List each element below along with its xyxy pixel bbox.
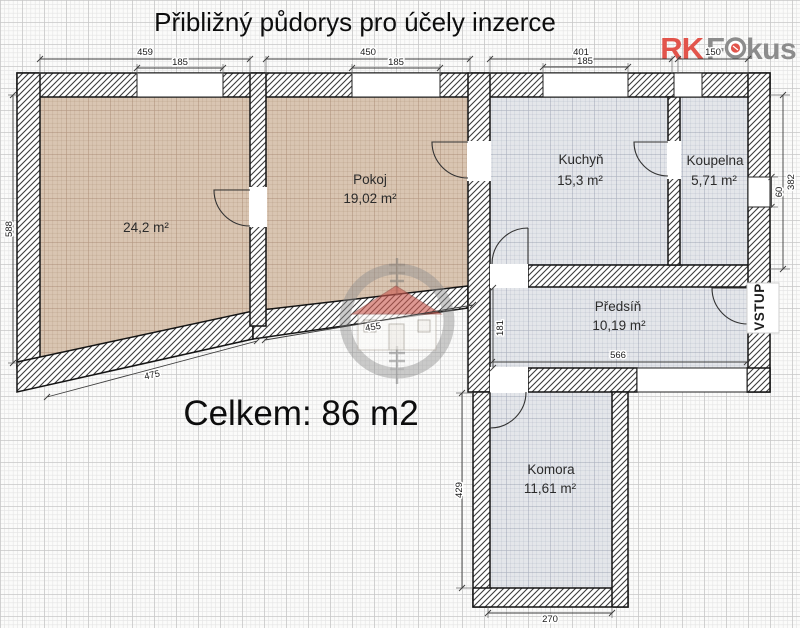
watermark-house-window-right bbox=[418, 320, 430, 332]
watermark bbox=[345, 258, 449, 384]
door-gap-kuchyn-predsin bbox=[490, 264, 528, 288]
page-title: Přibližný půdorys pro účely inzerce bbox=[154, 7, 556, 37]
dim-label-459: 459 bbox=[137, 47, 153, 58]
wall-kuchyn-koupelna-lower bbox=[668, 178, 680, 265]
dim-label-450: 450 bbox=[360, 47, 376, 58]
entrance: VSTUP bbox=[747, 283, 779, 333]
room-name-koupelna: Koupelna bbox=[686, 153, 744, 168]
wall-kuchyn-koupelna-upper bbox=[668, 97, 680, 142]
dim-label-60: 60 bbox=[774, 187, 785, 198]
dim-label-185-living: 185 bbox=[172, 57, 188, 68]
door-gap-living-pokoj bbox=[249, 187, 267, 227]
wall-kuchyn-bottom bbox=[528, 265, 770, 287]
dim-label-181: 181 bbox=[495, 320, 506, 336]
window-kuchyn bbox=[543, 73, 628, 97]
wall-predsin-bottom bbox=[528, 368, 637, 392]
room-name-kuchyn: Kuchyň bbox=[558, 152, 603, 167]
room-name-komora: Komora bbox=[527, 462, 575, 477]
dim-label-588: 588 bbox=[4, 221, 15, 237]
wall-left bbox=[17, 73, 40, 368]
wall-predsin-bottom-corner bbox=[747, 368, 770, 392]
dim-label-429: 429 bbox=[454, 482, 465, 498]
logo-kus: kus bbox=[746, 33, 796, 66]
room-area-predsin: 10,19 m² bbox=[592, 318, 646, 333]
wall-pokoj-kuchyn-upper bbox=[468, 73, 490, 142]
window-living bbox=[137, 73, 223, 97]
room-area-koupelna: 5,71 m² bbox=[691, 173, 737, 188]
window-koupelna-top bbox=[674, 73, 702, 97]
logo-rk: RK bbox=[660, 31, 704, 66]
room-area-living: 24,2 m² bbox=[123, 220, 169, 235]
dim-label-185-kuchyn: 185 bbox=[577, 56, 593, 67]
window-pokoj bbox=[352, 73, 440, 97]
wall-divider-rooms-upper bbox=[250, 73, 266, 188]
floor-plan-page: RK F kus 459 185 450 185 401 185 1 bbox=[0, 0, 800, 628]
room-area-komora: 11,61 m² bbox=[524, 481, 577, 496]
room-name-predsin: Předsíň bbox=[595, 299, 642, 314]
wall-komora-bottom bbox=[473, 588, 628, 607]
entrance-label: VSTUP bbox=[752, 283, 767, 331]
window-koupelna-right bbox=[748, 177, 770, 207]
dim-label-270: 270 bbox=[542, 614, 558, 625]
door-gap-pokoj-kuchyn bbox=[467, 141, 491, 181]
dim-label-150: 150 bbox=[705, 47, 721, 58]
room-name-pokoj: Pokoj bbox=[353, 172, 387, 187]
room-area-pokoj: 19,02 m² bbox=[343, 191, 397, 206]
dim-label-185-pokoj: 185 bbox=[388, 57, 404, 68]
door-gap-kuchyn-koupelna bbox=[667, 141, 681, 179]
dim-label-382: 382 bbox=[786, 174, 797, 190]
watermark-house-door bbox=[389, 324, 404, 350]
wall-komora-right bbox=[612, 392, 628, 607]
wall-pokoj-kuchyn-lower bbox=[468, 180, 490, 392]
window-predsin bbox=[637, 368, 747, 392]
door-gap-predsin-komora bbox=[490, 367, 528, 393]
floor-plan-canvas: RK F kus 459 185 450 185 401 185 1 bbox=[0, 0, 800, 628]
room-area-kuchyn: 15,3 m² bbox=[557, 173, 603, 188]
wall-divider-rooms-lower bbox=[250, 226, 266, 326]
wall-komora-left bbox=[473, 392, 490, 607]
total-area-label: Celkem: 86 m2 bbox=[183, 394, 418, 433]
dim-label-566: 566 bbox=[610, 350, 626, 361]
